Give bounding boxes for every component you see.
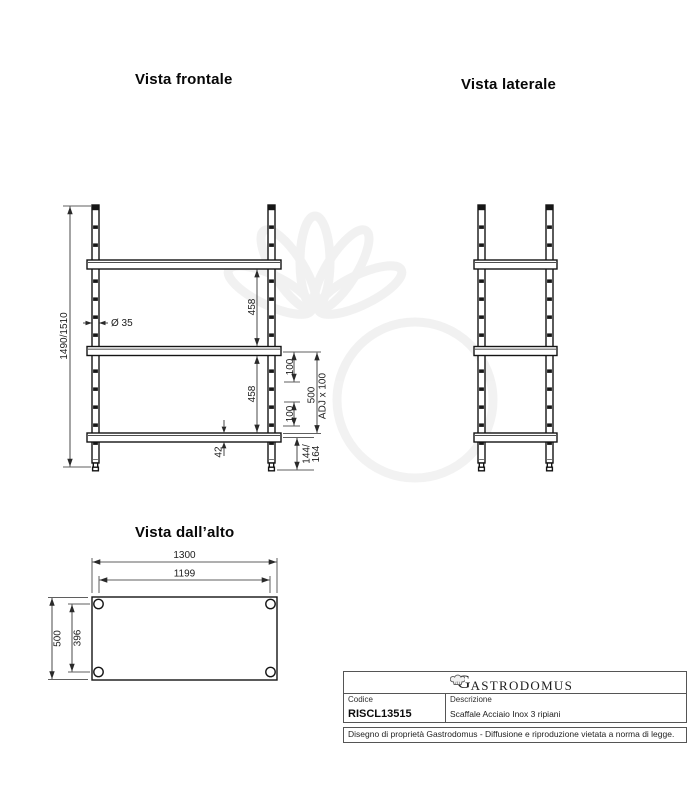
chef-hat-icon — [450, 673, 465, 687]
post-section — [266, 599, 275, 608]
top-view-title: Vista dall’alto — [135, 524, 234, 541]
code-value: RISCL13515 — [348, 707, 445, 721]
side-right-post — [546, 205, 553, 471]
dim-label: 458 — [247, 385, 258, 402]
side-left-post — [478, 205, 485, 471]
side-shelf-3 — [474, 433, 557, 442]
dim-tube-diameter: Ø 35 — [83, 318, 133, 329]
dim-label: 1490/1510 — [59, 312, 70, 360]
dim-shelf-gap-top: 458 — [247, 270, 258, 346]
code-label: Codice — [348, 695, 445, 705]
dim-slot-step-b: 100 — [283, 402, 300, 426]
drawing-page: 1490/1510 Ø 35 458 458 — [0, 0, 700, 800]
dim-shelf-gap-bottom: 458 — [247, 356, 258, 432]
dim-width-between-legs: 1199 — [99, 569, 270, 594]
post-section — [266, 667, 275, 676]
dim-label: 1300 — [173, 550, 196, 561]
dim-label: 164 — [311, 445, 322, 462]
post-section — [94, 599, 103, 608]
description-cell: Descrizione Scaffale Acciaio Inox 3 ripi… — [446, 694, 686, 723]
dim-label: 500 — [307, 386, 318, 403]
top-shelf-outline — [92, 597, 277, 680]
side-shelf-1 — [474, 260, 557, 269]
dim-overall-height: 1490/1510 — [59, 206, 91, 467]
front-shelf-3 — [87, 433, 281, 442]
brand-name: ASTRODOMUS — [471, 679, 574, 692]
top-view-drawing: 1300 1199 500 396 — [48, 550, 277, 680]
dim-label: 1199 — [174, 569, 196, 580]
description-label: Descrizione — [450, 695, 686, 705]
dim-slot-step-a: 100 — [283, 352, 321, 382]
legal-notice: Disegno di proprietà Gastrodomus - Diffu… — [343, 727, 687, 743]
front-shelf-2 — [87, 347, 281, 356]
title-block: G ASTRODOMUS Codice RISCL13515 Descrizio… — [343, 671, 687, 723]
front-left-post — [92, 205, 99, 471]
dim-label: 42 — [214, 446, 225, 458]
dim-label: 458 — [247, 298, 258, 315]
side-shelf-2 — [474, 347, 557, 356]
dim-label: 500 — [53, 630, 64, 647]
front-right-post — [268, 205, 275, 471]
dim-label: 396 — [73, 629, 84, 646]
front-view-title: Vista frontale — [135, 71, 233, 88]
post-section — [94, 667, 103, 676]
description-value: Scaffale Acciaio Inox 3 ripiani — [450, 708, 686, 720]
title-block-data-row: Codice RISCL13515 Descrizione Scaffale A… — [344, 694, 686, 723]
dim-depth-between-legs: 396 — [68, 604, 90, 672]
brand-row: G ASTRODOMUS — [344, 672, 686, 694]
front-shelf-1 — [87, 260, 281, 269]
code-cell: Codice RISCL13515 — [344, 694, 446, 723]
dim-label: 100 — [285, 405, 296, 422]
dim-foot-clearance: 144/ 164 — [277, 438, 322, 471]
dim-label: 100 — [285, 358, 296, 375]
side-view-title: Vista laterale — [461, 76, 556, 93]
dim-label: Ø 35 — [111, 318, 133, 329]
dim-label: ADJ x 100 — [318, 372, 329, 419]
